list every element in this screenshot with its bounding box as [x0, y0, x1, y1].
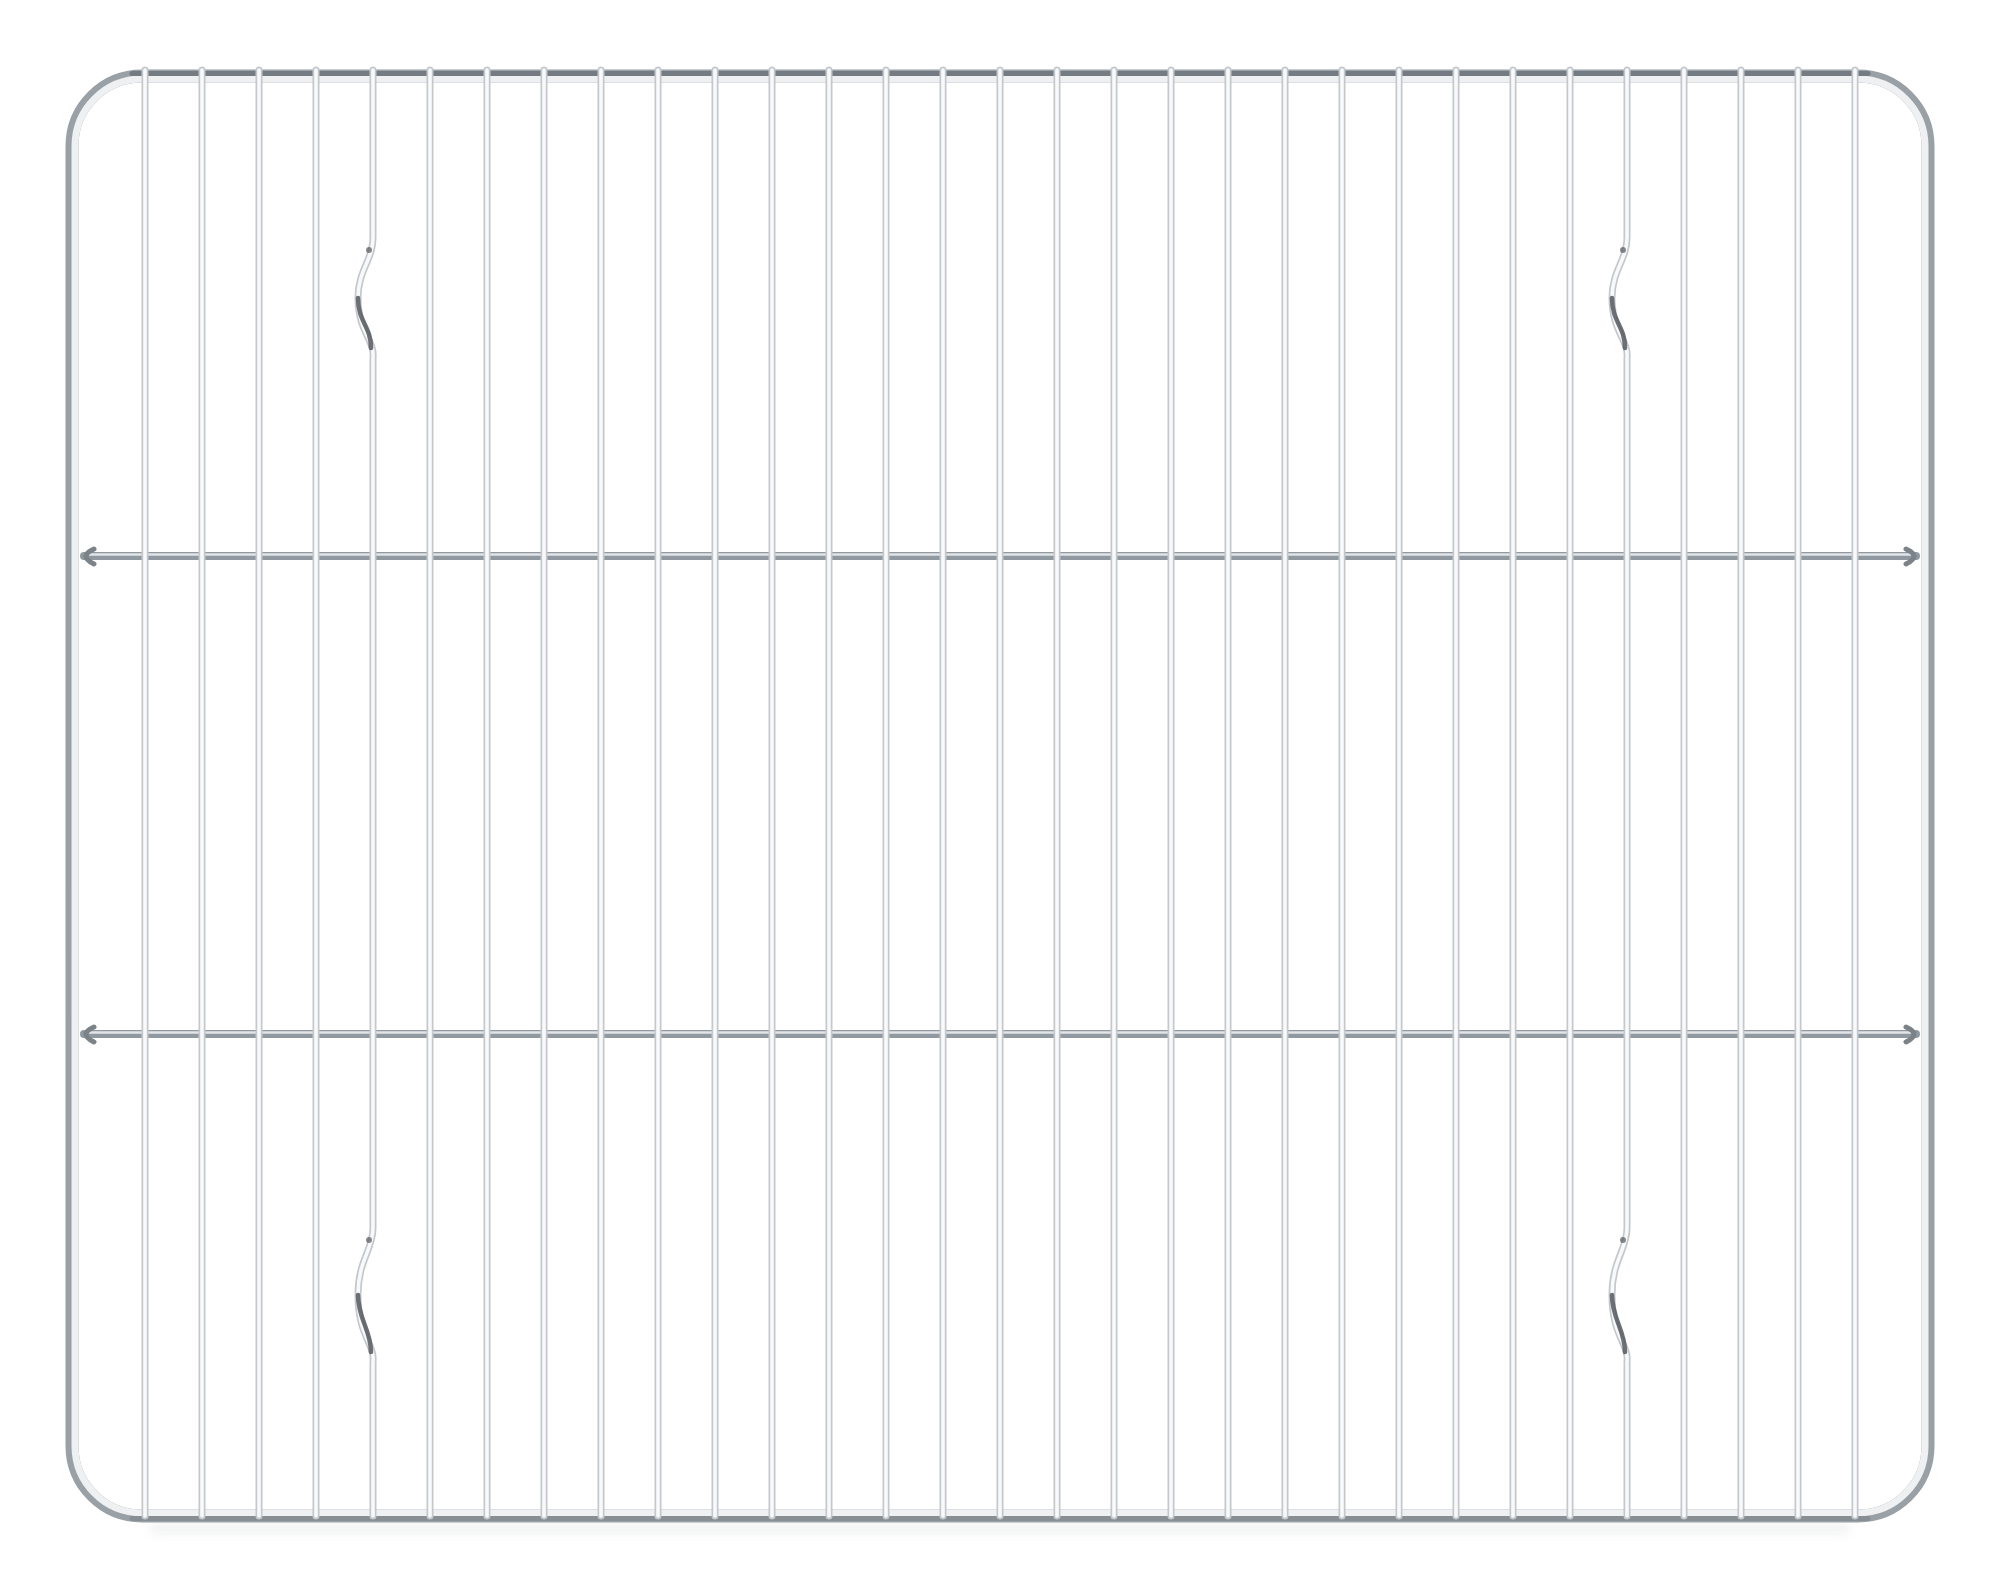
kink-glint-dot	[366, 1237, 372, 1243]
kink-glint-dot	[1620, 1237, 1626, 1243]
soft-shadow	[150, 1524, 1850, 1533]
kink-glint-dot	[366, 247, 372, 253]
vertical-wires	[145, 70, 1855, 1516]
kink-glint-dot	[1620, 247, 1626, 253]
kinked-vertical-wire	[358, 70, 373, 1516]
product-photo-canvas	[0, 0, 2000, 1589]
cooling-rack	[0, 0, 2000, 1589]
kinked-vertical-wire	[1612, 70, 1627, 1516]
